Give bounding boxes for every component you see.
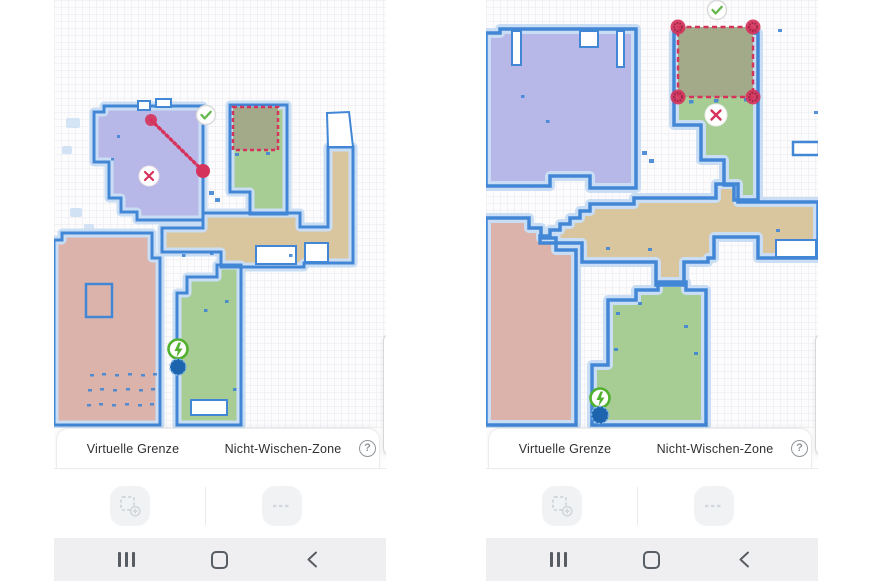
robot-marker <box>170 359 186 375</box>
charger-icon <box>169 340 188 359</box>
dashed-square-plus-icon <box>119 495 141 517</box>
help-icon[interactable]: ? <box>359 440 376 457</box>
toolbar-divider <box>205 487 206 525</box>
recents-button[interactable] <box>550 552 567 567</box>
tab-virtual-boundary[interactable]: Virtuelle Grenze <box>493 429 637 469</box>
confirm-button[interactable] <box>197 106 216 125</box>
screenshot-left: Virtuelle Grenze Nicht-Wischen-Zone ? <box>54 0 386 581</box>
bottom-sheet: Virtuelle Grenze Nicht-Wischen-Zone ? <box>488 428 812 469</box>
screenshot-right: Virtuelle Grenze Nicht-Wischen-Zone ? <box>486 0 818 581</box>
cancel-button[interactable] <box>705 104 727 126</box>
room-pink <box>54 233 160 425</box>
divider <box>486 468 818 469</box>
add-virtual-wall-button[interactable] <box>262 486 302 526</box>
android-navbar <box>486 538 818 581</box>
home-button[interactable] <box>211 551 228 569</box>
zone-corner-handle-tl[interactable] <box>671 20 686 35</box>
no-mop-zone-editor[interactable] <box>671 20 761 105</box>
tab-no-mop-zone[interactable]: Nicht-Wischen-Zone <box>211 429 355 469</box>
next-sheet-edge <box>815 333 818 456</box>
tab-no-mop-zone[interactable]: Nicht-Wischen-Zone <box>643 429 787 469</box>
next-sheet-edge <box>383 333 386 456</box>
zone-corner-handle-br[interactable] <box>746 90 761 105</box>
back-button[interactable] <box>738 551 750 568</box>
confirm-button[interactable] <box>708 1 727 20</box>
divider <box>54 468 386 469</box>
no-mop-zone[interactable] <box>233 107 278 150</box>
floor-map[interactable] <box>54 0 386 428</box>
bottom-sheet: Virtuelle Grenze Nicht-Wischen-Zone ? <box>56 428 380 469</box>
add-virtual-wall-button[interactable] <box>694 486 734 526</box>
dashed-line-icon <box>703 495 725 517</box>
no-mop-zone[interactable] <box>678 27 753 97</box>
room-purple <box>486 29 636 188</box>
page: Virtuelle Grenze Nicht-Wischen-Zone ? <box>0 0 872 581</box>
charger-icon <box>591 389 610 408</box>
cancel-button[interactable] <box>139 166 159 186</box>
add-no-mop-zone-button[interactable] <box>110 486 150 526</box>
toolbar-divider <box>637 487 638 525</box>
android-navbar <box>54 538 386 581</box>
help-icon[interactable]: ? <box>791 440 808 457</box>
recents-button[interactable] <box>118 552 135 567</box>
floor-map[interactable] <box>486 0 818 428</box>
home-button[interactable] <box>643 551 660 569</box>
tab-virtual-boundary[interactable]: Virtuelle Grenze <box>61 429 205 469</box>
dashed-line-icon <box>271 495 293 517</box>
back-button[interactable] <box>306 551 318 568</box>
dashed-square-plus-icon <box>551 495 573 517</box>
zone-corner-handle-bl[interactable] <box>671 90 686 105</box>
add-no-mop-zone-button[interactable] <box>542 486 582 526</box>
zone-corner-handle-tr[interactable] <box>746 20 761 35</box>
virtual-wall-handle-end[interactable] <box>196 164 210 178</box>
robot-marker <box>592 407 609 424</box>
virtual-wall-handle-start[interactable] <box>145 114 157 126</box>
